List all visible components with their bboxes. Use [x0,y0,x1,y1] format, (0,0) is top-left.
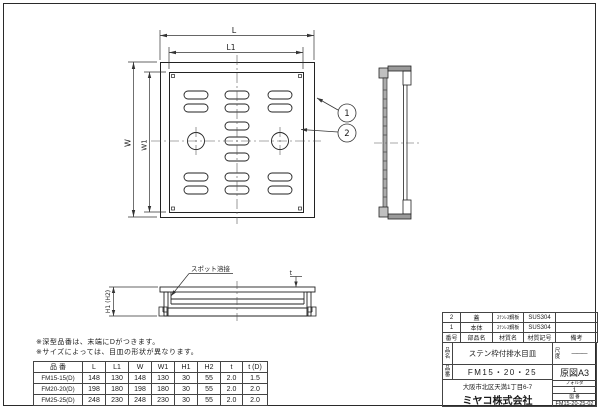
dim-header: H1 [175,362,198,373]
dim-label-L: L [232,26,237,35]
parts-header: 材質記号 [524,333,556,343]
dim-cell: 2.0 [221,373,243,384]
dim-header: H2 [198,362,221,373]
dim-table-row: FM25-25(D) 248 230 248 230 30 55 2.0 2.0 [34,395,268,406]
part-material-code: SUS304 [524,323,556,333]
dim-cell: 2.0 [243,384,268,395]
part-remarks [556,323,598,333]
product-name-label: 品名 [443,343,453,364]
spot-weld-label: スポット溶接 [191,264,231,273]
part-name: 蓋 [461,313,493,323]
dim-label-t: t [290,270,293,277]
part-material: ｽﾃﾝﾚｽ鋼板 [493,323,524,333]
dim-cell: 148 [83,373,106,384]
dim-cell: FM25-25(D) [34,395,83,406]
dim-t [290,277,302,288]
dim-cell: 2.0 [221,384,243,395]
dim-cell: 148 [129,373,152,384]
dim-cell: 30 [175,373,198,384]
notes: ※深型品番は、末端にDがつきます。 ※サイズによっては、目皿の形状が異なります。 [36,338,198,357]
dim-header: 品 番 [34,362,83,373]
note-line-2: ※サイズによっては、目皿の形状が異なります。 [36,348,198,358]
note-line-1: ※深型品番は、末端にDがつきます。 [36,338,198,348]
part-no: 2 [443,313,461,323]
part-name: 本体 [461,323,493,333]
drawing-number: FM15-20-25-02 [556,401,594,407]
callout-1-number: 1 [344,109,349,119]
product-number-label: 品番 [443,365,453,379]
callout-1 [317,98,356,122]
dim-cell: 30 [175,395,198,406]
drain-slots [184,91,292,194]
dim-header: t (D) [243,362,268,373]
parts-row: 1 本体 ｽﾃﾝﾚｽ鋼板 SUS304 [443,323,598,333]
paper-size: 原図A3 [560,366,589,379]
section-view [109,274,316,324]
dim-cell: 2.0 [243,395,268,406]
side-view [374,66,420,219]
drawing-number-label: 図 番 [553,394,596,401]
parts-header: 番号 [443,333,461,343]
dim-L1 [169,47,303,69]
dim-cell: 248 [129,395,152,406]
title-block: 品名 ステン枠付排水目皿 尺度 ——— 品番 FM15・20・25 原図A3 大… [442,342,597,407]
top-view [128,30,356,224]
part-remarks [556,313,598,323]
dim-cell: 248 [83,395,106,406]
dim-cell: 55 [198,373,221,384]
company-address: 大阪市北区天満1丁目6-7 [463,382,532,391]
dim-header: L1 [106,362,129,373]
part-no: 1 [443,323,461,333]
dim-cell: FM20-20(D) [34,384,83,395]
company-name: ミヤコ株式会社 [463,393,533,406]
dim-cell: 55 [198,384,221,395]
dim-label-W: W [124,139,133,147]
product-name: ステン枠付排水目皿 [453,348,552,359]
part-material: ｽﾃﾝﾚｽ鋼板 [493,313,524,323]
dim-header: W [129,362,152,373]
dim-table-row: FM15-15(D) 148 130 148 130 30 55 2.0 1.5 [34,373,268,384]
dim-cell: 30 [175,384,198,395]
dim-H1 [109,287,158,316]
callout-2-number: 2 [344,129,349,139]
dim-header: L [83,362,106,373]
section-lid-plate [160,287,315,292]
dim-table-row: FM20-20(D) 198 180 198 180 30 55 2.0 2.0 [34,384,268,395]
parts-header: 部品名 [461,333,493,343]
product-number: FM15・20・25 [453,367,552,378]
scale-label: 尺度 [553,343,562,364]
dim-cell: 180 [152,384,175,395]
dim-cell: 180 [106,384,129,395]
centerlines [151,55,321,224]
spot-weld-leader [171,274,233,297]
scale-value: ——— [562,351,596,357]
parts-header-row: 番号 部品名 材質名 材質記号 備考 [443,333,598,343]
dim-cell: 198 [83,384,106,395]
dim-label-L1: L1 [227,43,236,52]
dim-cell: 55 [198,395,221,406]
dim-header: t [221,362,243,373]
parts-row: 2 蓋 ｽﾃﾝﾚｽ鋼板 SUS304 [443,313,598,323]
dim-header: W1 [152,362,175,373]
parts-table: 2 蓋 ｽﾃﾝﾚｽ鋼板 SUS304 1 本体 ｽﾃﾝﾚｽ鋼板 SUS304 番… [442,312,598,343]
parts-header: 材質名 [493,333,524,343]
part-material-code: SUS304 [524,313,556,323]
dim-cell: 230 [152,395,175,406]
dim-label-W1: W1 [141,139,149,150]
drawing-sheet: L L1 W W1 1 2 [0,0,600,410]
dim-cell: FM15-15(D) [34,373,83,384]
dim-cell: 198 [129,384,152,395]
lid-outline [170,73,304,213]
dim-cell: 230 [106,395,129,406]
parts-header: 備考 [556,333,598,343]
dim-cell: 1.5 [243,373,268,384]
dim-cell: 2.0 [221,395,243,406]
dim-table-header-row: 品 番 L L1 W W1 H1 H2 t t (D) [34,362,268,373]
dim-cell: 130 [152,373,175,384]
dim-cell: 130 [106,373,129,384]
corner-marks [172,75,302,211]
dimension-table: 品 番 L L1 W W1 H1 H2 t t (D) FM15-15(D) 1… [33,361,268,406]
dim-label-H1: H1 (H2) [105,290,112,313]
